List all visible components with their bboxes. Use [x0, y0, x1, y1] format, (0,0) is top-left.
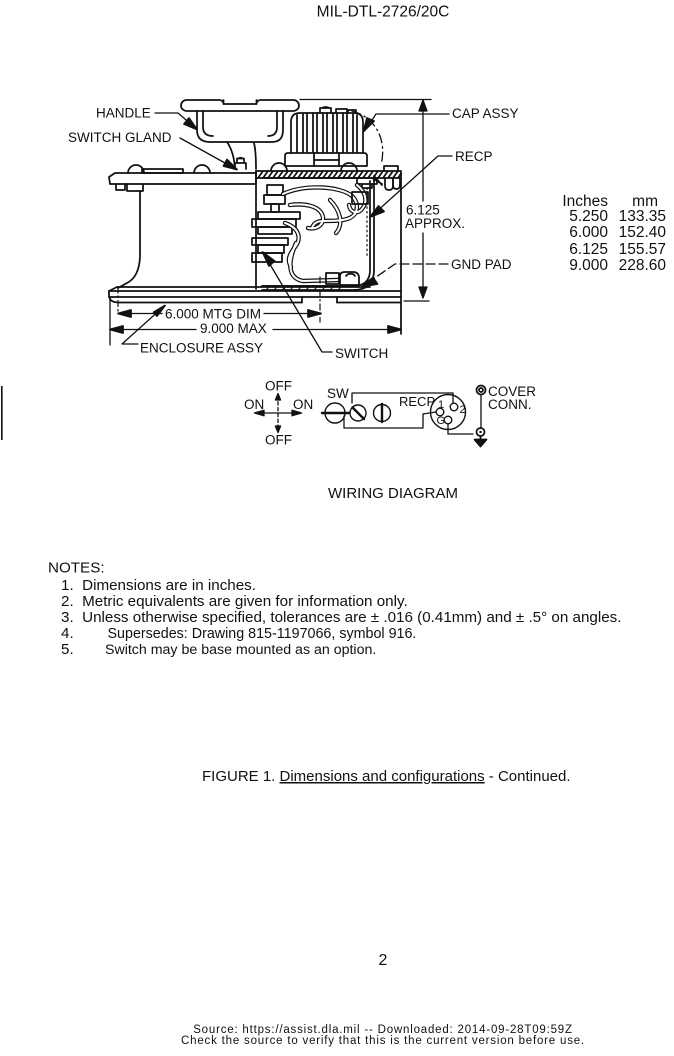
- svg-text:155.57: 155.57: [619, 241, 666, 258]
- svg-text:6.000: 6.000: [569, 224, 608, 241]
- svg-text:152.40: 152.40: [619, 224, 667, 241]
- svg-text:HANDLE: HANDLE: [96, 106, 151, 121]
- svg-text:SW: SW: [327, 386, 349, 401]
- svg-text:ENCLOSURE ASSY: ENCLOSURE ASSY: [140, 341, 263, 356]
- svg-text:3. Unless otherwise specified: 3. Unless otherwise specified, tolerance…: [61, 609, 622, 626]
- svg-text:6.125: 6.125: [569, 241, 608, 258]
- svg-text:OFF: OFF: [265, 433, 292, 448]
- svg-text:FIGURE 1. Dimensions and confi: FIGURE 1. Dimensions and configurations …: [202, 768, 571, 785]
- svg-text:G: G: [437, 415, 446, 427]
- svg-text:2: 2: [379, 952, 388, 969]
- svg-text:5.250: 5.250: [569, 208, 608, 225]
- svg-text:GND PAD: GND PAD: [451, 257, 512, 272]
- svg-text:1: 1: [438, 399, 444, 411]
- svg-text:MIL-DTL-2726/20C: MIL-DTL-2726/20C: [317, 4, 450, 21]
- svg-text:228.60: 228.60: [619, 257, 667, 274]
- svg-text:CONN.: CONN.: [488, 397, 532, 412]
- svg-text:Check the source to verify tha: Check the source to verify that this is …: [181, 1035, 585, 1047]
- svg-text:2. Metric equivalents are giv: 2. Metric equivalents are given for info…: [61, 593, 408, 610]
- svg-text:CAP ASSY: CAP ASSY: [452, 106, 519, 121]
- svg-text:NOTES:: NOTES:: [48, 560, 105, 577]
- svg-text:Supersedes: Drawing 815-119706: Supersedes: Drawing 815-1197066, symbol …: [108, 626, 417, 642]
- svg-text:9.000 MAX: 9.000 MAX: [200, 321, 267, 336]
- svg-text:OFF: OFF: [265, 379, 292, 394]
- svg-text:5.: 5.: [61, 641, 74, 658]
- svg-text:4.: 4.: [61, 625, 74, 642]
- svg-text:1. Dimensions are in inches.: 1. Dimensions are in inches.: [61, 577, 256, 594]
- svg-text:RECP: RECP: [455, 149, 493, 164]
- svg-text:SWITCH: SWITCH: [335, 346, 388, 361]
- svg-text:9.000: 9.000: [569, 257, 608, 274]
- svg-text:APPROX.: APPROX.: [405, 216, 465, 231]
- svg-text:RECP: RECP: [399, 394, 435, 409]
- svg-text:ON: ON: [293, 397, 313, 412]
- svg-text:SWITCH GLAND: SWITCH GLAND: [68, 130, 172, 145]
- svg-text:2: 2: [460, 404, 466, 416]
- svg-text:6.000 MTG DIM: 6.000 MTG DIM: [165, 307, 261, 322]
- svg-text:133.35: 133.35: [619, 208, 666, 225]
- svg-text:Switch may be base mounted as: Switch may be base mounted as an option.: [105, 642, 376, 658]
- svg-text:ON: ON: [244, 397, 264, 412]
- svg-text:WIRING DIAGRAM: WIRING DIAGRAM: [328, 485, 458, 502]
